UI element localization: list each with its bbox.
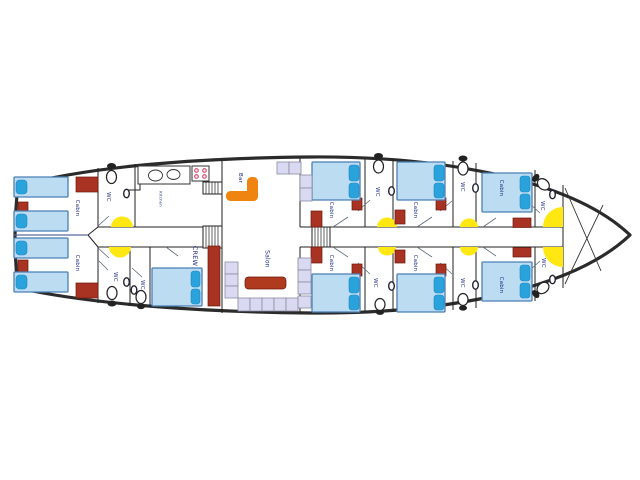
seat-cushion [298, 270, 311, 282]
seat-cushion [250, 298, 262, 311]
pillow [349, 277, 359, 293]
nightstand [18, 260, 28, 272]
wardrobe [395, 250, 405, 263]
pillow [434, 277, 444, 293]
sink-icon [131, 286, 137, 294]
sink-icon [389, 282, 395, 290]
seat-cushion [300, 188, 312, 201]
label-cabin: Cabin [412, 255, 418, 272]
label-wc: WC [139, 280, 145, 290]
pillow [520, 194, 530, 209]
seat-cushion [300, 175, 312, 188]
galley-stairs-icon [203, 182, 222, 194]
label-wc: WC [112, 272, 118, 282]
pillow [434, 183, 444, 198]
pillow [16, 241, 27, 255]
corridor-stairs-mid-icon [312, 227, 330, 247]
label-crew: CREW [191, 246, 199, 267]
seat-cushion [225, 262, 238, 274]
dresser [513, 248, 531, 258]
label-wc: WC [372, 278, 378, 288]
corridor-stairs-aft-icon [203, 226, 222, 248]
pillow [349, 183, 359, 198]
label-cabin: Cabin [74, 255, 80, 272]
dresser [513, 218, 531, 228]
pillow [191, 289, 200, 304]
label-kitchen: Kitchen [159, 191, 164, 207]
seat-cushion [225, 274, 238, 286]
seat-cushion [238, 298, 250, 311]
galley-sink-icon [149, 170, 163, 181]
pillow [434, 295, 444, 310]
label-cabin: Cabin [412, 202, 418, 219]
seat-cushion [298, 296, 311, 308]
label-wc: WC [459, 278, 465, 288]
seat-cushion [298, 282, 311, 294]
label-salon: Salon [264, 250, 271, 268]
pillow [16, 214, 27, 228]
stove-icon [192, 166, 209, 181]
label-cabin: Cabin [328, 202, 334, 219]
crew-cabinet [208, 246, 220, 306]
toilet-icon [107, 163, 117, 184]
wardrobe [311, 247, 322, 263]
pillow [16, 275, 27, 289]
pillow [16, 180, 27, 194]
pillow [434, 165, 444, 181]
label-wc: WC [105, 192, 111, 202]
seat-cushion [277, 162, 289, 174]
wardrobe [395, 210, 405, 224]
sink-icon [124, 189, 130, 197]
pillow [520, 176, 530, 192]
seat-cushion [289, 162, 301, 174]
label-wc: WC [539, 201, 545, 211]
toilet-icon [458, 294, 468, 311]
pillow [520, 283, 530, 298]
pillow [191, 271, 200, 287]
sink-icon [473, 184, 479, 192]
toilet-icon [136, 291, 146, 310]
toilet-icon [458, 156, 468, 176]
deck-plan: Cabin Cabin WC WC WC Kitchen CREW Bar Sa… [0, 0, 640, 480]
wardrobe [311, 211, 322, 227]
label-cabin: Cabin [498, 180, 504, 197]
galley-counter [138, 166, 190, 184]
wardrobe [76, 177, 98, 192]
label-wc: WC [459, 182, 465, 192]
seat-cushion [286, 298, 298, 311]
label-cabin: Cabin [74, 200, 80, 217]
pillow [349, 165, 359, 181]
label-cabin: Cabin [498, 277, 504, 294]
seat-cushion [274, 298, 286, 311]
salon-table [245, 277, 286, 289]
pillow [349, 295, 359, 310]
label-wc: WC [540, 258, 546, 268]
sink-icon [473, 281, 479, 289]
pillow [520, 265, 530, 281]
sink-icon [389, 187, 395, 195]
seat-cushion [262, 298, 274, 311]
seat-cushion [225, 286, 238, 298]
label-bar: Bar [237, 173, 243, 184]
wardrobe [76, 283, 98, 298]
seat-cushion [298, 258, 311, 270]
galley-sink-icon [167, 170, 180, 180]
label-cabin: Cabin [328, 255, 334, 272]
toilet-icon [374, 153, 384, 173]
sink-icon [124, 278, 130, 286]
sink-icon [550, 275, 556, 283]
toilet-icon [375, 299, 385, 315]
label-wc: WC [374, 187, 380, 197]
deck-plan-svg: Cabin Cabin WC WC WC Kitchen CREW Bar Sa… [0, 0, 640, 480]
sink-icon [550, 190, 556, 198]
toilet-icon [107, 287, 117, 307]
